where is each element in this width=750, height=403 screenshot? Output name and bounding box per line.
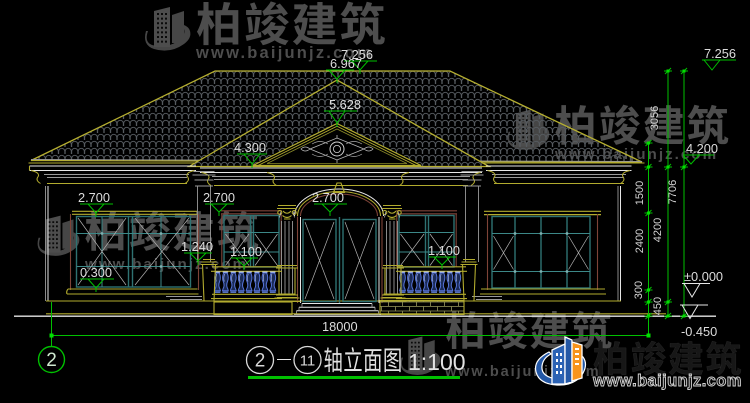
svg-text:300: 300 — [633, 281, 645, 299]
svg-text:1500: 1500 — [634, 181, 646, 205]
svg-text:7.256: 7.256 — [704, 46, 736, 61]
svg-text:2: 2 — [255, 351, 266, 372]
svg-text:2.700: 2.700 — [203, 190, 235, 205]
svg-text:6.967: 6.967 — [330, 56, 362, 71]
svg-text:2: 2 — [46, 350, 57, 371]
svg-text:1.240: 1.240 — [181, 239, 213, 254]
svg-text:www.baijunjz.com: www.baijunjz.com — [592, 372, 742, 390]
svg-text:0.300: 0.300 — [80, 265, 112, 280]
svg-text:18000: 18000 — [322, 319, 358, 334]
svg-text:4200: 4200 — [652, 218, 664, 242]
svg-text:1.100: 1.100 — [230, 244, 262, 259]
svg-text:1:100: 1:100 — [408, 349, 466, 375]
svg-text:7706: 7706 — [667, 180, 679, 204]
svg-text:2.700: 2.700 — [78, 190, 110, 205]
svg-text:±0.000: ±0.000 — [684, 269, 723, 284]
svg-text:3056: 3056 — [649, 106, 661, 130]
svg-text:450: 450 — [652, 297, 664, 315]
svg-text:5.628: 5.628 — [329, 97, 361, 112]
svg-text:2400: 2400 — [634, 229, 646, 253]
svg-text:11: 11 — [300, 353, 316, 370]
svg-text:-0.450: -0.450 — [681, 324, 717, 339]
svg-text:4.200: 4.200 — [686, 141, 718, 156]
svg-text:1.100: 1.100 — [428, 243, 460, 258]
svg-text:4.300: 4.300 — [234, 140, 266, 155]
svg-text:2.700: 2.700 — [312, 190, 344, 205]
